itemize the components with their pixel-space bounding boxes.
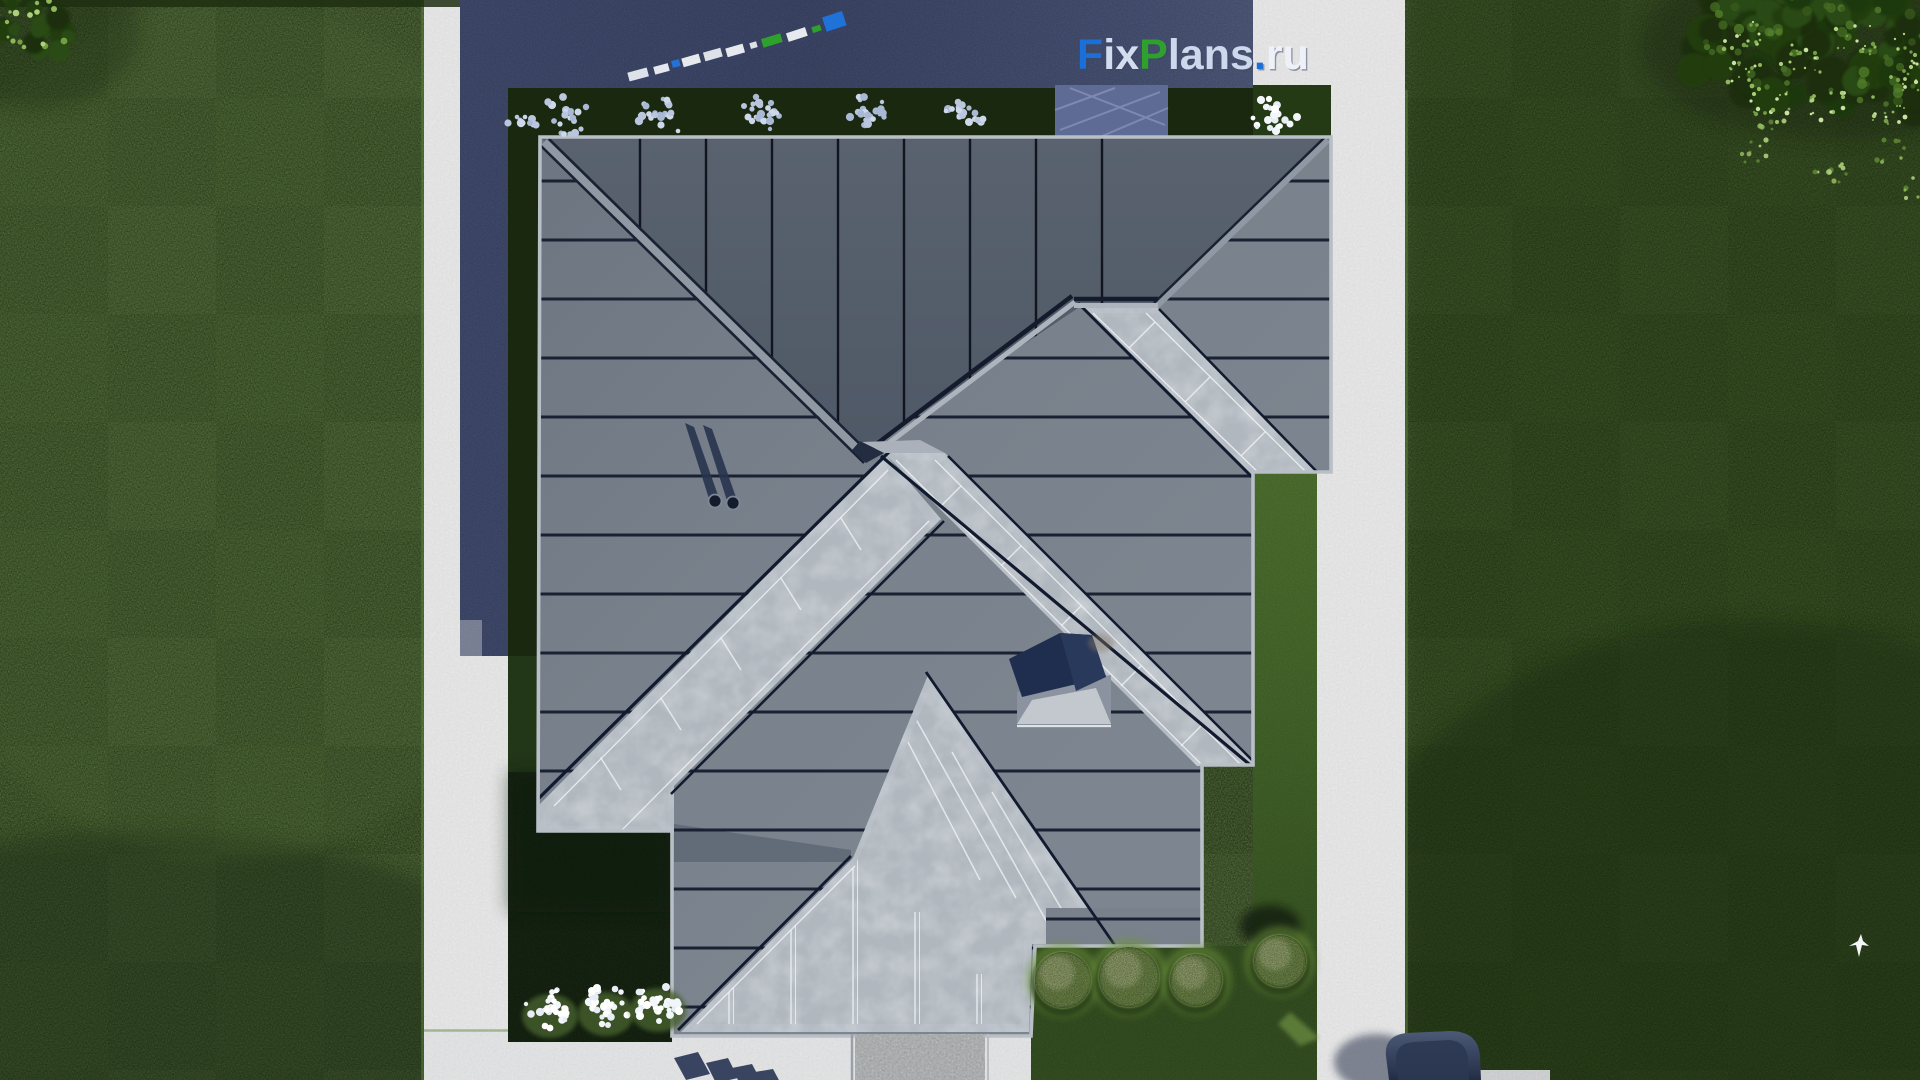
svg-text:FixPlans.ru: FixPlans.ru	[1077, 31, 1309, 79]
